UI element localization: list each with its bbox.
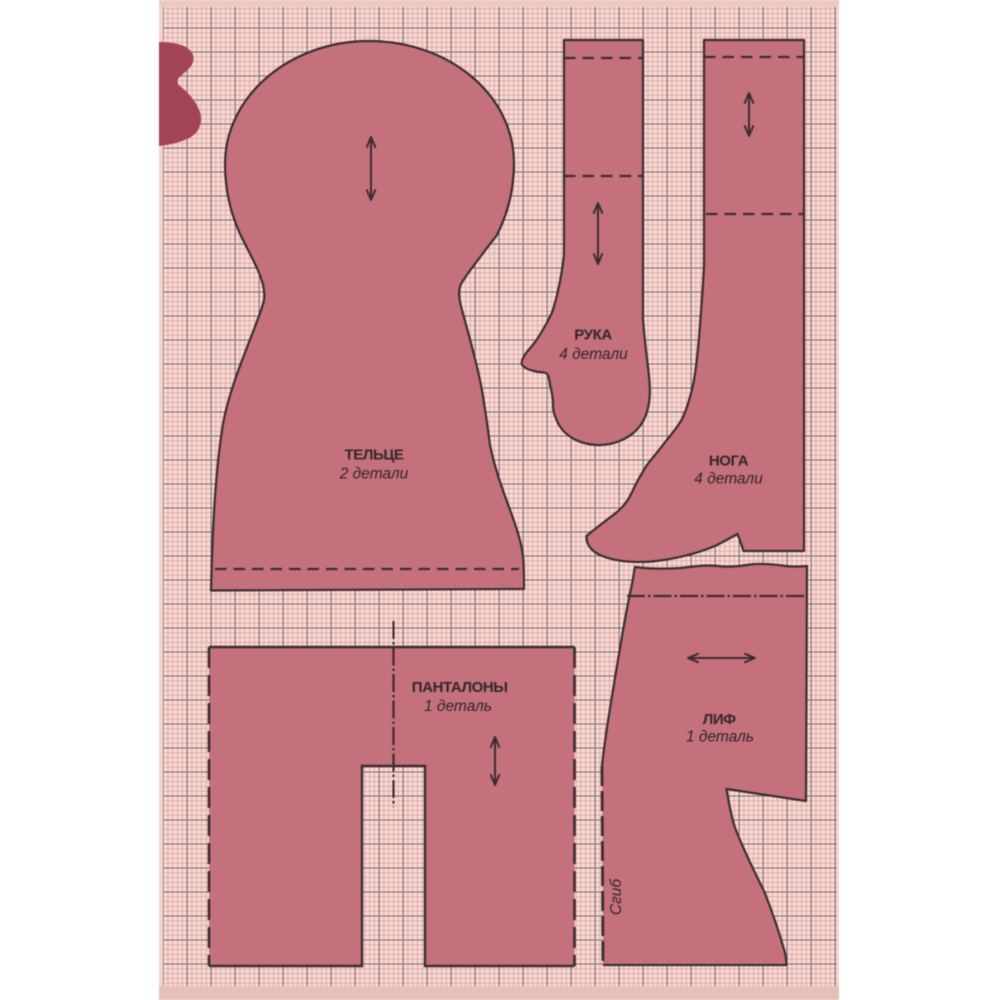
- svg-text:НОГА: НОГА: [709, 453, 749, 470]
- svg-text:4 детали: 4 детали: [694, 471, 763, 488]
- svg-text:РУКА: РУКА: [574, 327, 612, 344]
- svg-text:ТЕЛЬЦЕ: ТЕЛЬЦЕ: [344, 447, 403, 464]
- svg-text:ЛИФ: ЛИФ: [703, 711, 737, 728]
- svg-text:1 деталь: 1 деталь: [424, 698, 492, 715]
- svg-text:Сгиб: Сгиб: [608, 878, 625, 915]
- svg-text:4 детали: 4 детали: [559, 346, 628, 363]
- svg-text:1 деталь: 1 деталь: [686, 729, 754, 746]
- svg-text:ПАНТАЛОНЫ: ПАНТАЛОНЫ: [412, 679, 508, 696]
- svg-text:2 детали: 2 детали: [339, 466, 409, 483]
